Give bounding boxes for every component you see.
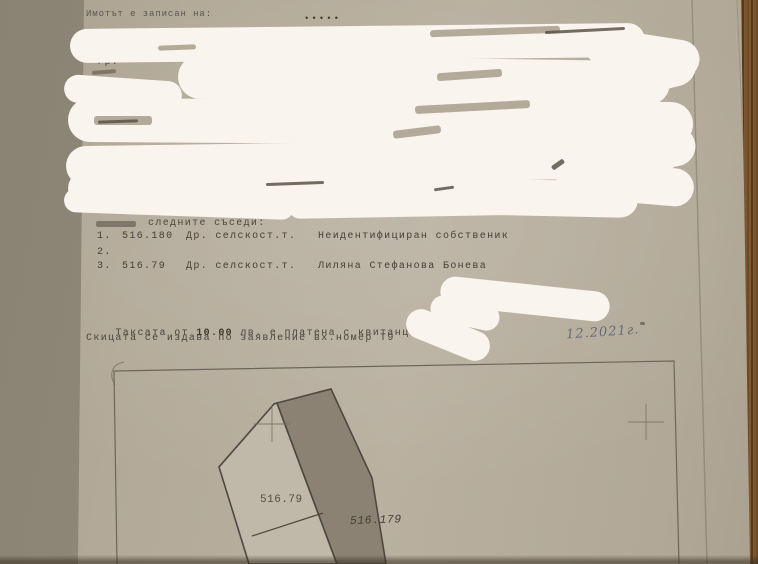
parcel-right-label: 516.179: [350, 513, 402, 528]
row-parcel: 516.180: [122, 231, 173, 242]
crosshair-mark: [628, 404, 664, 440]
row-num: 1.: [97, 231, 112, 242]
row-type: Др. селскост.т.: [186, 231, 296, 242]
sketch-frame: [114, 361, 679, 564]
photographed-cadastral-document: Имотът е записан на: ••••• – гр. следнит…: [0, 0, 758, 564]
paper-edge-line: [737, 0, 747, 230]
registered-line: Имотът е записан на:: [86, 9, 212, 19]
fee-number-fragment: 3: [446, 328, 453, 339]
row-owner: Лиляна Стефанова Бонева: [318, 261, 487, 272]
parcel-left-label: 516.79: [260, 494, 303, 506]
row-parcel: 516.79: [122, 261, 166, 272]
paper-crease: [692, 0, 707, 564]
photo-bottom-shadow: [0, 555, 758, 564]
row-num: 3.: [97, 261, 112, 272]
ink-speck: [640, 322, 645, 325]
row-type: Др. селскост.т.: [186, 261, 296, 272]
neighbors-header: следните съседи:: [148, 218, 266, 229]
application-line: Скицата се издава по заявление вх.номер …: [86, 333, 395, 344]
row-num: 2.: [97, 247, 112, 258]
row-owner: Неидентифициран собственик: [318, 231, 509, 242]
city-fragment: – гр.: [83, 57, 119, 68]
fee-number-sign: №: [432, 328, 439, 339]
cadastral-sketch: 516.79 516.179: [0, 0, 758, 564]
obscured-header-start: [96, 221, 136, 227]
dots-fragment: •••••: [304, 14, 341, 24]
